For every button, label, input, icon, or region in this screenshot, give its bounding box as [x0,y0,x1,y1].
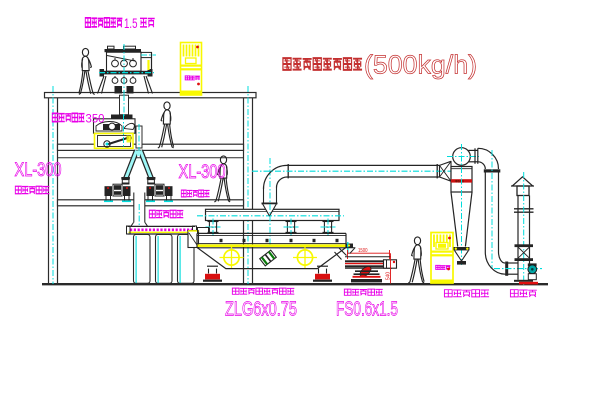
svg-text:FS0.6x1.5: FS0.6x1.5 [336,298,398,321]
svg-text:1500: 1500 [358,248,368,254]
svg-text:1.5: 1.5 [124,15,138,31]
svg-text:XL-300: XL-300 [179,161,226,183]
svg-text:(500kg/h): (500kg/h) [364,50,477,80]
svg-text:540: 540 [386,272,392,280]
svg-text:ZLG6x0.75: ZLG6x0.75 [225,298,297,321]
svg-text:Φ600: Φ600 [455,179,464,183]
svg-text:350: 350 [86,114,105,126]
svg-text:XL-300: XL-300 [15,159,62,181]
